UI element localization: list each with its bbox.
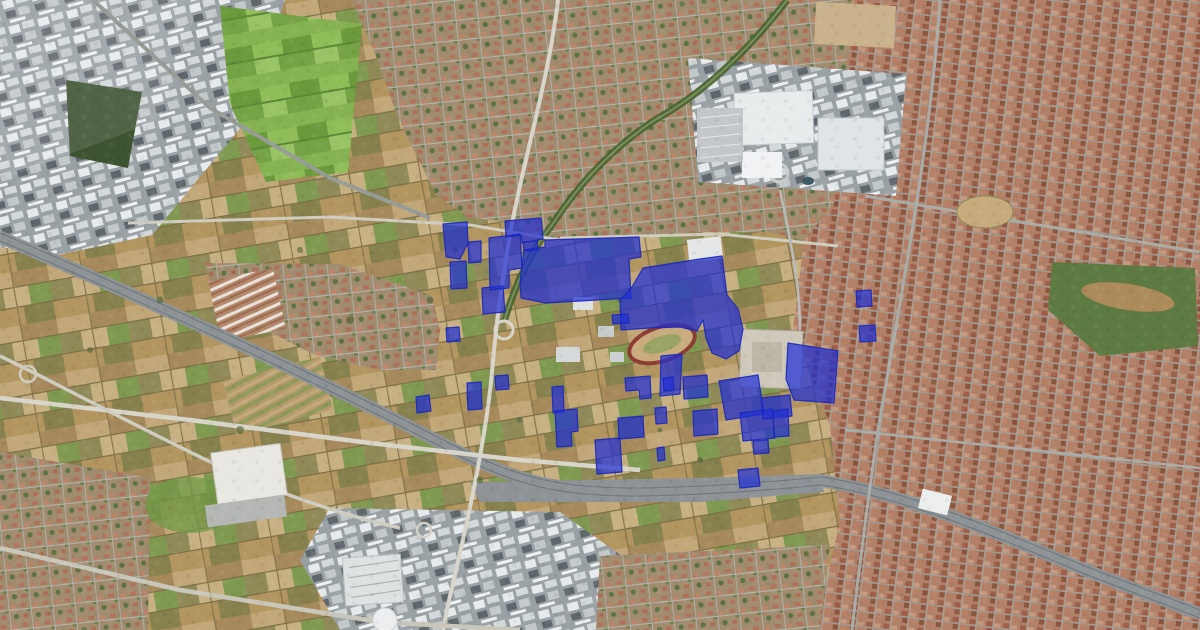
highlighted-parcel[interactable] [446, 327, 460, 342]
highlighted-parcel[interactable] [450, 261, 467, 289]
map-viewport[interactable] [0, 0, 1200, 630]
highlighted-parcel[interactable] [468, 241, 481, 263]
photo-grain [0, 0, 1200, 630]
highlighted-parcel[interactable] [663, 377, 674, 391]
satellite-map[interactable] [0, 0, 1200, 630]
highlighted-parcel[interactable] [595, 438, 622, 474]
highlighted-parcel[interactable] [618, 416, 644, 439]
highlighted-parcel[interactable] [612, 314, 629, 324]
highlighted-parcel[interactable] [753, 440, 769, 454]
highlighted-parcel[interactable] [859, 325, 876, 342]
highlighted-parcel[interactable] [467, 382, 482, 410]
highlighted-parcel[interactable] [552, 386, 564, 413]
highlighted-parcel[interactable] [773, 409, 789, 437]
highlighted-parcel[interactable] [786, 343, 838, 403]
highlighted-parcel[interactable] [856, 290, 872, 307]
highlighted-parcel[interactable] [683, 375, 708, 399]
highlighted-parcel[interactable] [738, 468, 760, 488]
highlighted-parcel[interactable] [693, 409, 718, 436]
highlighted-parcel[interactable] [657, 447, 665, 461]
highlighted-parcel[interactable] [655, 407, 667, 424]
highlighted-parcel[interactable] [416, 395, 431, 413]
highlighted-parcel[interactable] [495, 375, 509, 390]
